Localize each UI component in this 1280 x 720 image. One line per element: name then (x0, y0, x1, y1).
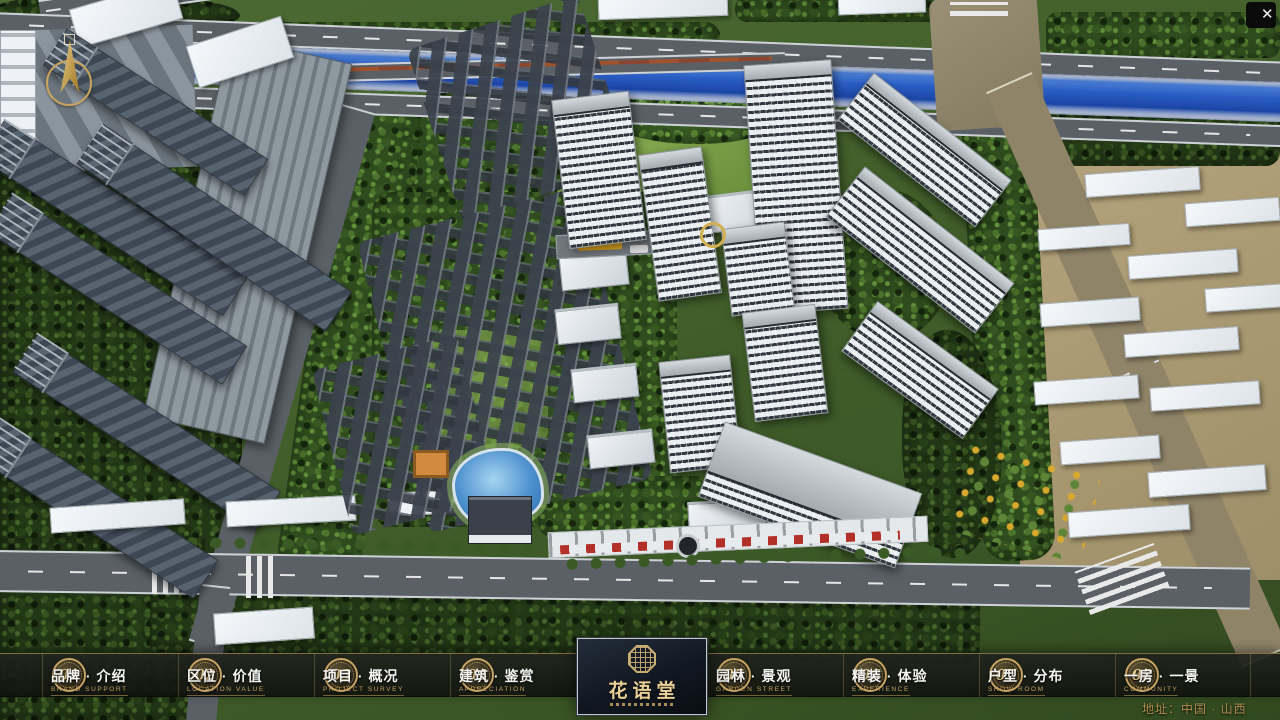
traditional-gate (468, 496, 532, 544)
close-button[interactable]: ✕ (1246, 2, 1276, 28)
tree-cluster (1046, 12, 1280, 58)
nav-item-brand-intro[interactable]: 01 品牌 · 介绍 BRAND SUPPORT (42, 653, 178, 697)
compass-north-indicator (40, 36, 100, 114)
nav-item-label: 户型 · 分布 (988, 666, 1063, 686)
project-title: 花语堂 (578, 676, 706, 703)
orange-roof-building (413, 450, 449, 478)
nav-item-sublabel: BRAND SUPPORT (51, 686, 128, 696)
nav-item-label: 品牌 · 介绍 (51, 666, 126, 686)
nav-item-label: 一房 · 一景 (1124, 666, 1199, 686)
project-logo-panel[interactable]: 花语堂 (577, 638, 707, 715)
crosswalk (950, 2, 1008, 16)
nav-item-garden-landscape[interactable]: 05 园林 · 景观 GARDEN STREET (707, 653, 843, 697)
nav-item-location-value[interactable]: 02 区位 · 价值 LOCATION VALUE (178, 653, 314, 697)
midrise-building (586, 429, 655, 470)
nav-item-sublabel: PROJECT SURVEY (323, 686, 404, 696)
nav-item-sublabel: GARDEN STREET (716, 686, 792, 696)
project-address: 地址：中国 · 山西 (1142, 700, 1247, 717)
nav-item-label: 项目 · 概况 (323, 666, 398, 686)
nav-item-fine-decoration[interactable]: 06 精装 · 体验 EXPERIENCE (843, 653, 979, 697)
project-tagline-rule (610, 703, 674, 706)
close-icon: ✕ (1261, 2, 1274, 28)
nav-item-sublabel: SHOW ROOM (988, 686, 1045, 696)
crosswalk (246, 556, 276, 598)
highrise-tower (742, 304, 829, 422)
nav-item-sublabel: COMMUNITY (1124, 686, 1178, 696)
project-seal-icon (628, 645, 656, 673)
nav-item-sublabel: LOCATION VALUE (187, 686, 265, 696)
nav-item-floorplans[interactable]: 07 户型 · 分布 SHOW ROOM (979, 653, 1115, 697)
midrise-building (570, 363, 639, 404)
aerial-view[interactable] (0, 0, 1280, 720)
nav-item-sublabel: EXPERIENCE (852, 686, 910, 696)
nav-item-label: 园林 · 景观 (716, 666, 791, 686)
nav-item-room-views[interactable]: 08 一房 · 一景 COMMUNITY (1115, 653, 1251, 697)
nav-item-label: 区位 · 价值 (187, 666, 262, 686)
white-slab-building (1204, 283, 1280, 312)
nav-item-project-survey[interactable]: 03 项目 · 概况 PROJECT SURVEY (314, 653, 450, 697)
vehicle (630, 245, 648, 254)
nav-item-label: 建筑 · 鉴赏 (459, 666, 534, 686)
highrise-tower (721, 221, 795, 316)
white-slab-building (598, 0, 729, 20)
nav-item-architecture[interactable]: 04 建筑 · 鉴赏 APPRECIATION (450, 653, 577, 697)
nav-item-label: 精装 · 体验 (852, 666, 927, 686)
nav-item-sublabel: APPRECIATION (459, 686, 526, 696)
midrise-building (554, 303, 621, 345)
sales-app-window: ✕ 01 品牌 · 介绍 BRAND SUPPORT 02 区位 · 价值 LO… (0, 0, 1280, 720)
gold-landscape-feature (700, 222, 726, 248)
